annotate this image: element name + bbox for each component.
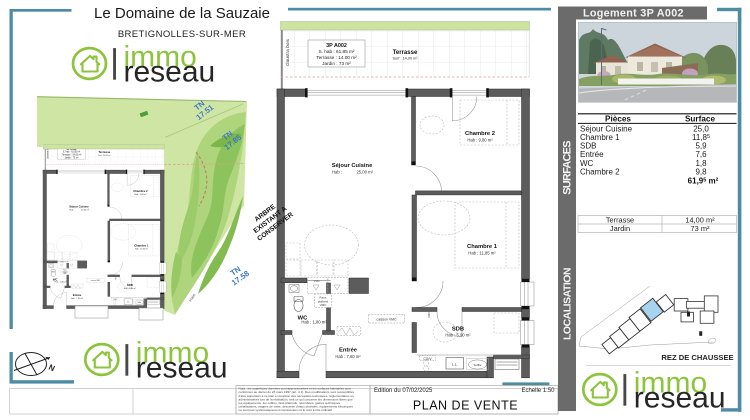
svg-text:Jardin : 73 m²: Jardin : 73 m² <box>322 61 351 66</box>
svg-text:claustra bois: claustra bois <box>285 38 291 66</box>
svg-text:Hab :: Hab : <box>332 170 342 175</box>
svg-text:9,8: 9,8 <box>695 167 707 176</box>
svg-text:PLAN DE VENTE: PLAN DE VENTE <box>413 399 518 413</box>
svg-text:Surface: Surface <box>685 115 715 124</box>
svg-text:61,95 m²: 61,95 m² <box>688 176 719 185</box>
svg-text:S. hab : 61.85 m²: S. hab : 61.85 m² <box>319 49 355 54</box>
svg-text:Chambre 2: Chambre 2 <box>465 131 495 137</box>
svg-text:BRETIGNOLLES-SUR-MER: BRETIGNOLLES-SUR-MER <box>118 29 246 40</box>
svg-text:VMC: VMC <box>427 312 431 318</box>
svg-text:L.L.: L.L. <box>452 362 458 366</box>
svg-text:CG/V: CG/V <box>423 357 432 361</box>
svg-text:Edition du 07/02/2025: Edition du 07/02/2025 <box>374 388 433 394</box>
svg-text:Entrée: Entrée <box>339 348 358 354</box>
svg-text:Hab : 1,80 m²: Hab : 1,80 m² <box>301 320 327 325</box>
svg-text:VMC: VMC <box>314 279 322 283</box>
svg-text:73 m²: 73 m² <box>691 224 710 233</box>
svg-text:LOCALISATION: LOCALISATION <box>562 268 574 340</box>
svg-text:REZ DE CHAUSSEE: REZ DE CHAUSSEE <box>661 353 733 362</box>
svg-text:Hab : 7,60 m²: Hab : 7,60 m² <box>335 354 361 359</box>
svg-text:Le Domaine de la Sauzaie: Le Domaine de la Sauzaie <box>94 5 270 22</box>
svg-text:Terrasse: Terrasse <box>393 50 418 56</box>
svg-text:ne sont pas systématiquement r: ne sont pas systématiquement représentés… <box>239 408 333 412</box>
svg-text:Hab : 5,90 m²: Hab : 5,90 m² <box>445 333 471 338</box>
svg-text:caisson VMC: caisson VMC <box>377 318 398 322</box>
svg-text:Séjour Cuisine: Séjour Cuisine <box>332 163 373 169</box>
svg-text:Hab : 9,80 m²: Hab : 9,80 m² <box>467 138 493 143</box>
svg-text:VMC: VMC <box>320 303 328 307</box>
svg-text:Jardin: Jardin <box>610 224 630 233</box>
svg-text:Terrasse : 14.00 m²: Terrasse : 14.00 m² <box>316 55 357 60</box>
svg-text:Pièces: Pièces <box>605 115 631 124</box>
svg-text:Soffite: Soffite <box>474 363 482 367</box>
svg-text:Chambre 2: Chambre 2 <box>580 167 620 176</box>
svg-text:Surf : 14,00 m²: Surf : 14,00 m² <box>392 57 418 61</box>
svg-text:Echelle 1:50: Echelle 1:50 <box>521 388 555 394</box>
svg-text:SURFACES: SURFACES <box>562 141 574 195</box>
svg-text:Hab : 11,85 m²: Hab : 11,85 m² <box>468 251 496 256</box>
svg-text:Chambre 1: Chambre 1 <box>467 244 498 250</box>
svg-text:3P A002: 3P A002 <box>326 43 347 49</box>
svg-text:Logement 3P A002: Logement 3P A002 <box>583 8 684 20</box>
svg-text:25,00 m²: 25,00 m² <box>356 170 373 175</box>
